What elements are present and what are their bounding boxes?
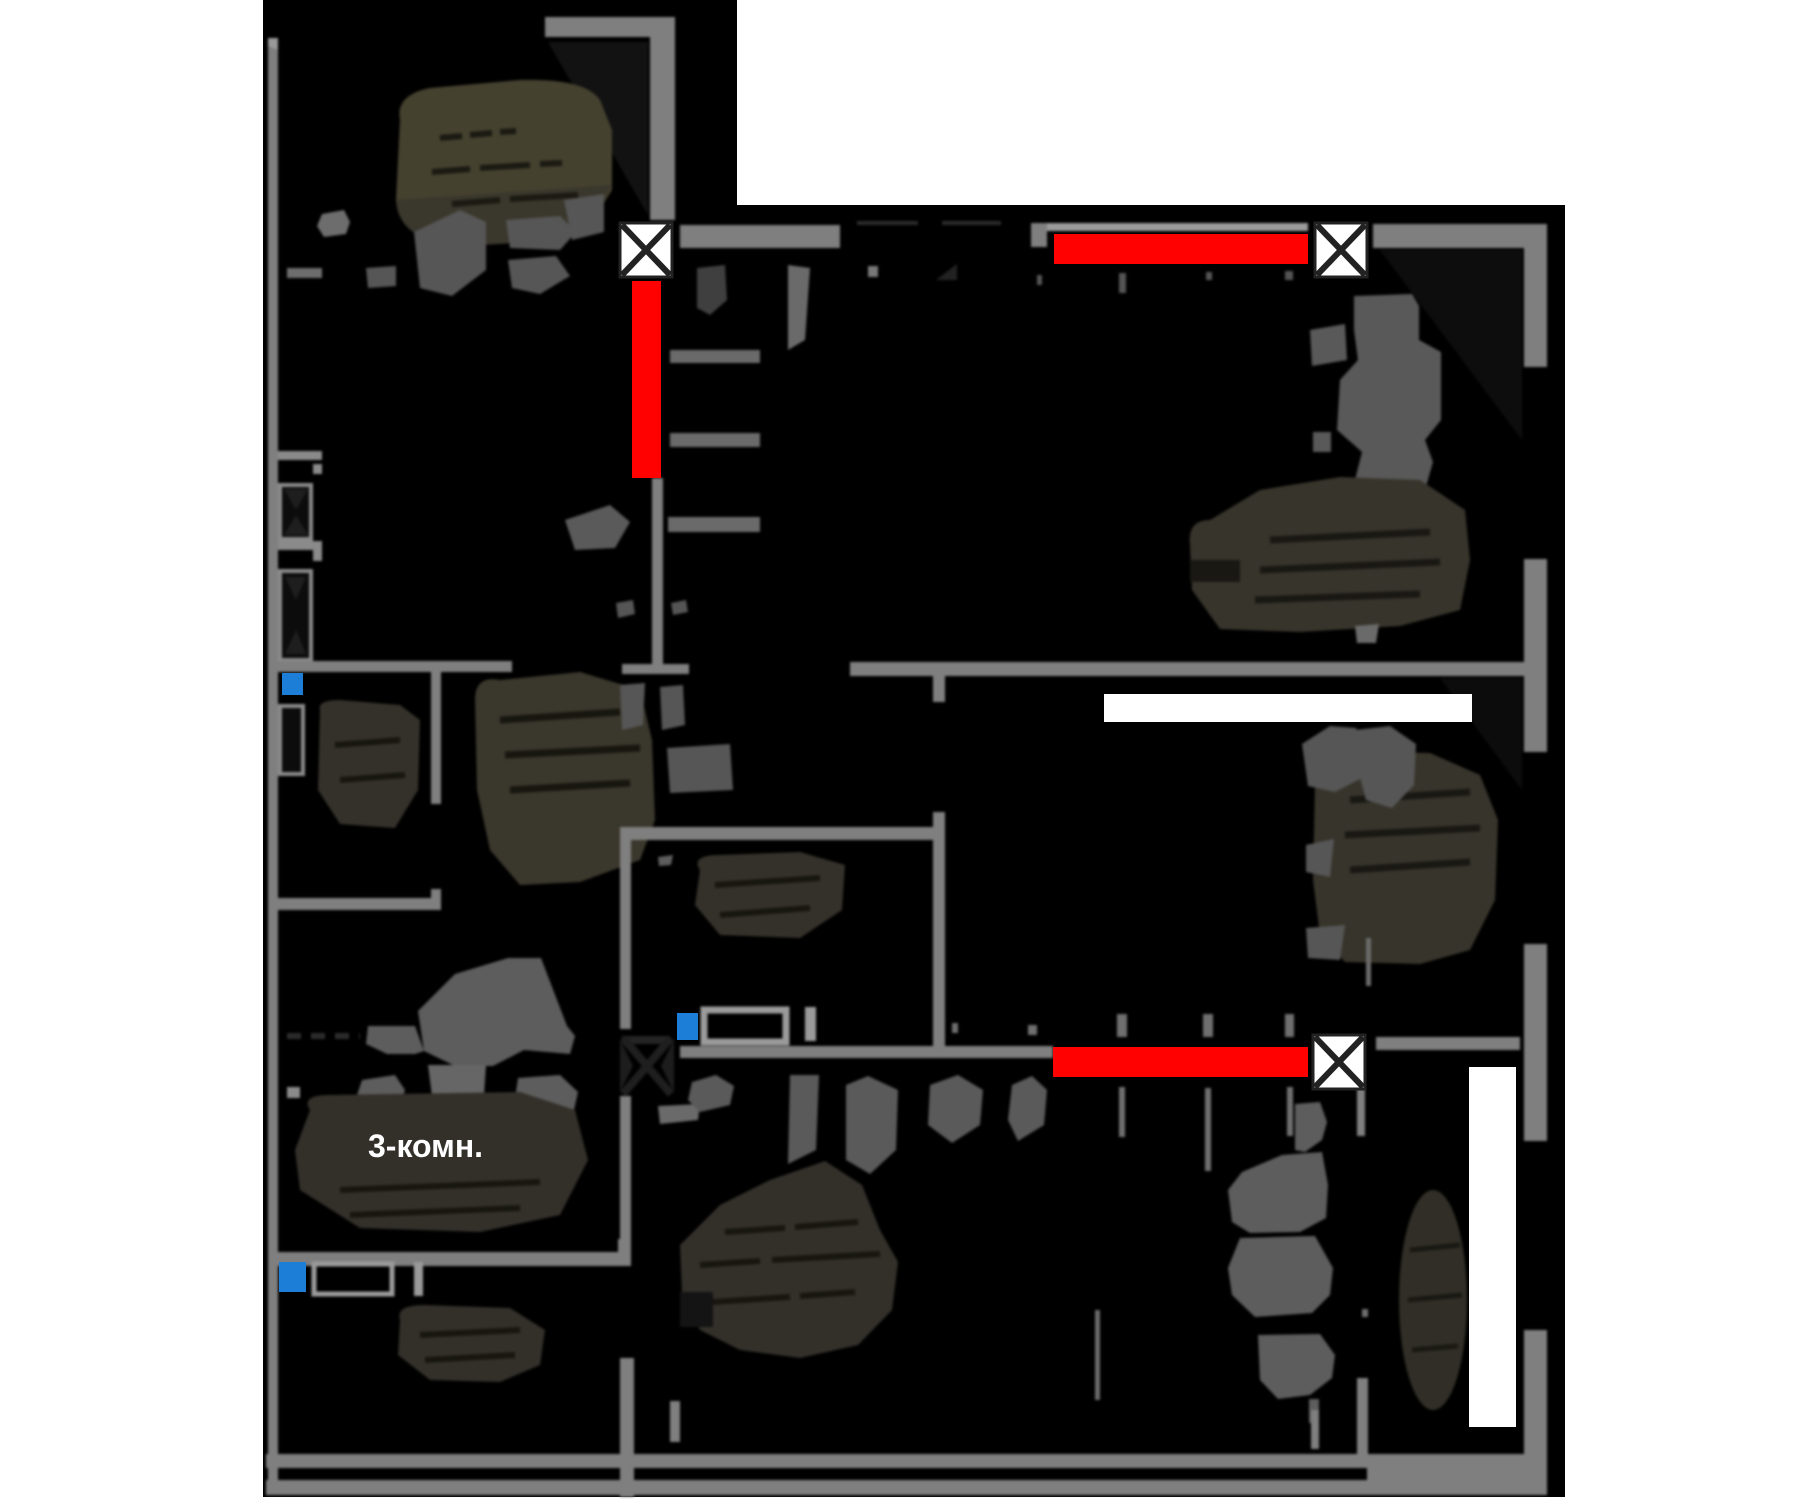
svg-text:3-комн.: 3-комн. bbox=[368, 1128, 483, 1164]
